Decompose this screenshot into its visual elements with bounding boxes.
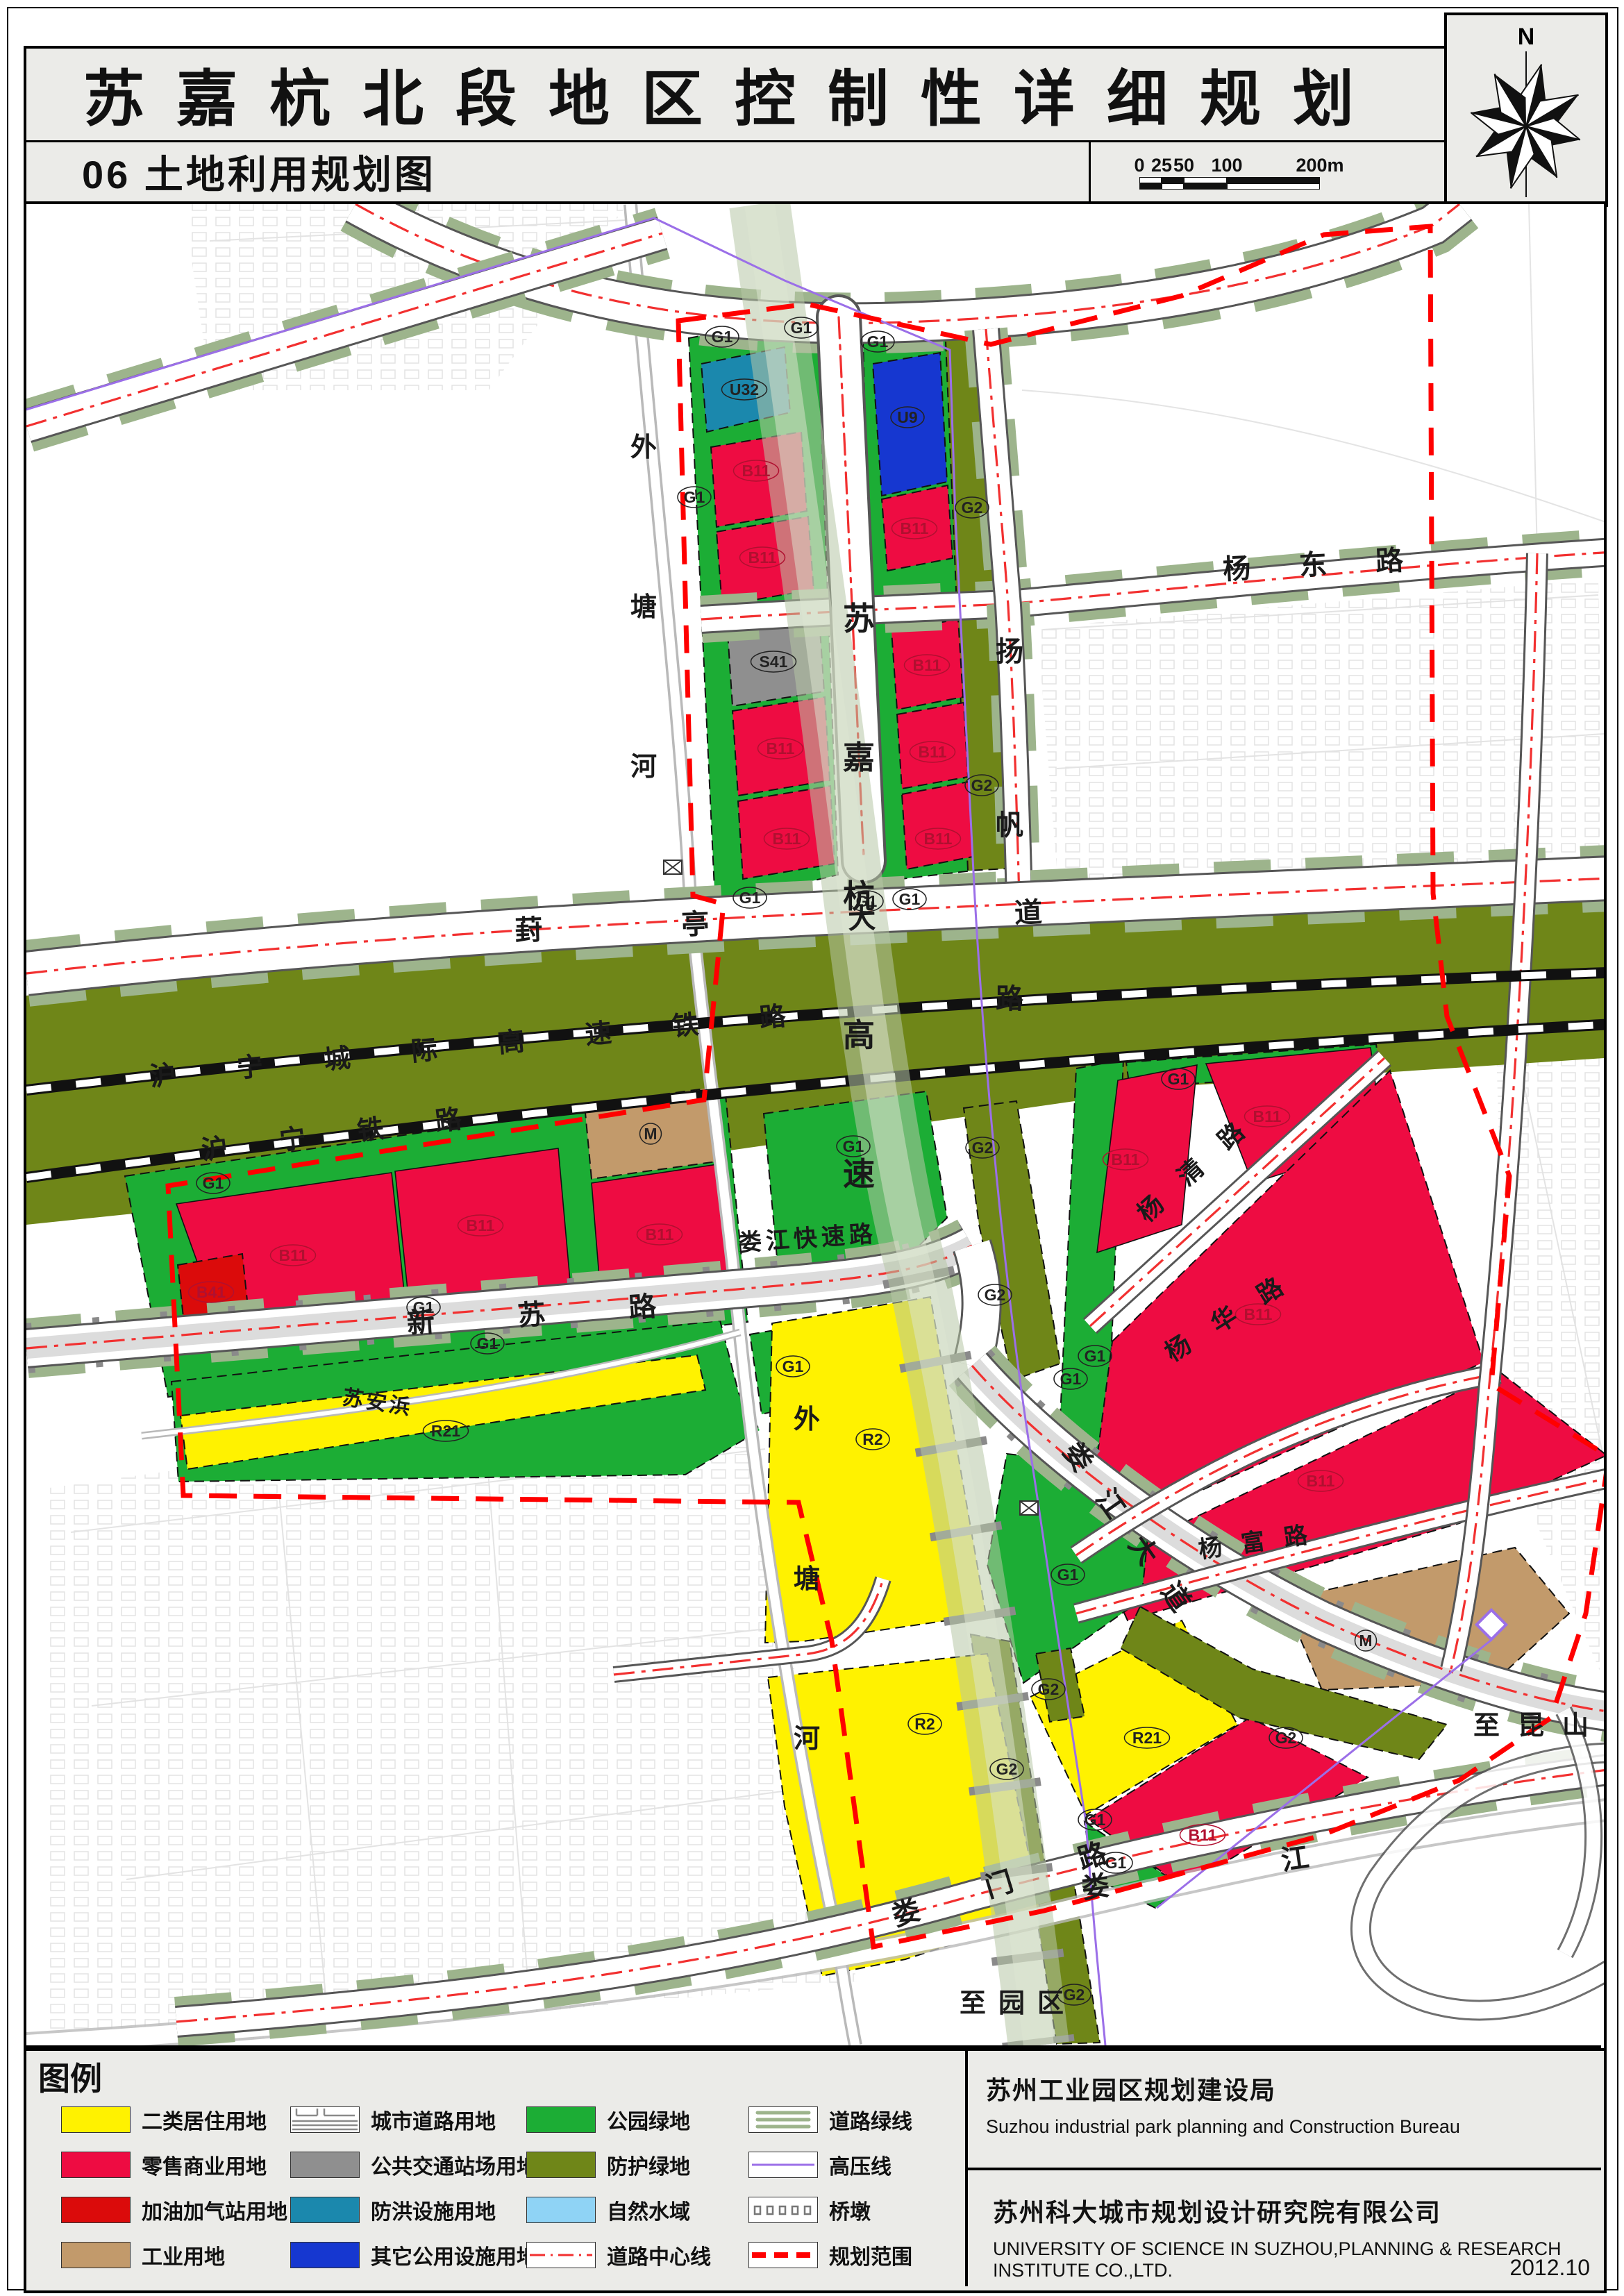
- legend-item-other-utility: 其它公用设施用地: [290, 2240, 526, 2270]
- legend-item-gas-station: 加油加气站用地: [61, 2195, 290, 2225]
- legend-item-protective-green: 防护绿地: [526, 2150, 748, 2180]
- hv-line-swatch: [748, 2152, 818, 2178]
- scale-segment: [1162, 177, 1184, 183]
- scale-bar: 0 25 50 100 200m: [1089, 142, 1446, 201]
- parcel-code-r2: R2: [862, 1430, 882, 1448]
- parcel-code-u9: U9: [897, 408, 917, 426]
- parcel-code-m: M: [644, 1125, 657, 1143]
- retail-swatch: [61, 2152, 131, 2178]
- north-arrow-icon: N: [1447, 15, 1605, 204]
- park-green-swatch: [526, 2106, 596, 2133]
- parcel-code-r21: R21: [1132, 1729, 1162, 1747]
- north-arrow-box: N: [1444, 12, 1608, 207]
- legend-item-retail: 零售商业用地: [61, 2150, 290, 2180]
- scale-tick-25: 25: [1151, 155, 1172, 176]
- road-centerline-swatch: [526, 2242, 596, 2268]
- land-use-map: G1G1U32B11B11G1S41B11B11G1G1U9B11B11B11B…: [26, 204, 1604, 2048]
- north-label: N: [1518, 24, 1535, 50]
- legend-item-flood-control: 防洪设施用地: [290, 2195, 526, 2225]
- sluice-icon: [1020, 1501, 1038, 1515]
- parcel-code-r2: R2: [914, 1715, 935, 1733]
- other-utility-swatch: [290, 2242, 360, 2268]
- parcel-code-b11: B11: [748, 548, 777, 567]
- parcel-code-g1: G1: [203, 1174, 224, 1192]
- scale-tick-200m: 200m: [1296, 155, 1343, 176]
- parcel-code-g1: G1: [684, 488, 705, 506]
- parcel-code-g1: G1: [782, 1357, 804, 1375]
- page-subtitle: 06 土地利用规划图: [82, 144, 436, 200]
- scale-tick-100: 100: [1211, 155, 1242, 176]
- road-ave-connector: [972, 1246, 982, 1366]
- dir-to-yuanqu: 至园区: [960, 1989, 1076, 2018]
- dir-to-kunshan: 至昆山: [1473, 1711, 1604, 1741]
- scale-segment: [1184, 177, 1227, 183]
- parcel-code-g2: G2: [972, 1139, 994, 1157]
- residential-swatch: [61, 2106, 131, 2133]
- legend-item-planning-scope: 规划范围: [748, 2240, 950, 2270]
- legend-item-road-centerline: 道路中心线: [526, 2240, 748, 2270]
- parcel-code-b11: B11: [913, 656, 941, 674]
- parcel-code-g2: G2: [1038, 1680, 1060, 1698]
- parcel-code-b11: B11: [767, 739, 795, 757]
- parcel-code-g2: G2: [996, 1760, 1018, 1778]
- institute-name-cn: 苏州科大城市规划设计研究院有限公司: [993, 2193, 1624, 2229]
- parcel-code-b11: B11: [924, 830, 953, 848]
- parcel-code-g1: G1: [1057, 1566, 1079, 1584]
- parcel-code-g1: G1: [1060, 1370, 1082, 1388]
- gas-station-swatch: [61, 2197, 131, 2223]
- scale-segment: [1162, 183, 1184, 190]
- transit-station-swatch: [290, 2152, 360, 2178]
- footer-divider: [968, 2168, 1601, 2170]
- parcel-code-g2: G2: [1275, 1729, 1297, 1747]
- legend-item-road-greenline: 道路绿线: [748, 2104, 950, 2135]
- scale-segment: [1139, 183, 1162, 190]
- legend-title: 图例: [38, 2054, 102, 2100]
- parcel-code-g1: G1: [867, 333, 889, 351]
- scale-segment: [1227, 183, 1320, 190]
- scale-tick-0: 0: [1134, 155, 1144, 176]
- parcel-code-r21: R21: [431, 1422, 460, 1440]
- scale-tick-50: 50: [1173, 155, 1194, 176]
- title-bar: 苏嘉杭北段地区控制性详细规划: [26, 49, 1443, 139]
- page-title: 苏嘉杭北段地区控制性详细规划: [83, 50, 1386, 138]
- parcel-code-g2: G2: [985, 1286, 1006, 1304]
- scale-segment: [1139, 177, 1162, 183]
- industrial-swatch: [61, 2242, 131, 2268]
- parcel-code-g1: G1: [1168, 1070, 1189, 1088]
- parcel-code-m: M: [1359, 1632, 1372, 1650]
- parcel-code-g2: G2: [971, 776, 993, 794]
- legend-item-park-green: 公园绿地: [526, 2104, 748, 2135]
- parcel-code-g2: G2: [962, 498, 983, 517]
- parcel-code-u32: U32: [730, 380, 759, 399]
- urban-road-swatch: [290, 2106, 360, 2133]
- parcel-code-b11: B11: [279, 1246, 308, 1264]
- parcel-code-g1: G1: [739, 889, 761, 907]
- legend-item-natural-water: 自然水域: [526, 2195, 748, 2225]
- parcel-code-b11: B11: [742, 462, 771, 480]
- legend-item-bridge-pier: 桥墩: [748, 2195, 950, 2225]
- parcel-code-b11: B11: [467, 1216, 495, 1234]
- parcel-code-g1: G1: [712, 328, 733, 346]
- parcel-code-b41: B41: [196, 1283, 226, 1301]
- scale-segment: [1227, 177, 1320, 183]
- legend-item-industrial: 工业用地: [61, 2240, 290, 2270]
- legend-item-transit-station: 公共交通站场用地: [290, 2150, 526, 2180]
- map-date: 2012.10: [1509, 2255, 1590, 2281]
- legend-item-urban-road: 城市道路用地: [290, 2104, 526, 2135]
- parcel-code-b11: B11: [646, 1225, 674, 1243]
- road-greenline-swatch: [748, 2106, 818, 2133]
- parcel-code-b11: B11: [901, 519, 929, 537]
- parcel-code-b11: B11: [773, 830, 801, 848]
- parcel-code-b11: B11: [919, 743, 947, 761]
- subtitle-cell: 06 土地利用规划图: [26, 142, 1089, 201]
- planning-scope-swatch: [748, 2242, 818, 2268]
- sluice-icon: [664, 860, 682, 874]
- parcel-code-g1: G1: [1085, 1347, 1106, 1365]
- parcel-code-b11: B11: [1307, 1472, 1335, 1490]
- parcel-code-b11: B11: [1112, 1150, 1140, 1168]
- protective-green-swatch: [526, 2152, 596, 2178]
- legend: 二类居住用地 城市道路用地 公园绿地 道路绿线 零售商业用地 公共交通站场用地 …: [61, 2097, 957, 2277]
- scale-segment: [1184, 183, 1227, 190]
- bridge-pier-swatch: [748, 2197, 818, 2223]
- legend-item-hv-line: 高压线: [748, 2150, 950, 2180]
- parcel-code-s41: S41: [760, 653, 788, 671]
- flood-control-swatch: [290, 2197, 360, 2223]
- legend-item-residential: 二类居住用地: [61, 2104, 290, 2135]
- zone-b11: [902, 782, 973, 869]
- bureau-name-cn: 苏州工业园区规划建设局: [986, 2070, 1460, 2106]
- parcel-code-g1: G1: [791, 319, 812, 337]
- bureau-name-en: Suzhou industrial park planning and Cons…: [986, 2116, 1460, 2138]
- parcel-code-b11: B11: [1189, 1826, 1217, 1844]
- parcel-code-g1: G1: [477, 1334, 499, 1352]
- parcel-code-g1: G1: [1085, 1811, 1106, 1829]
- bureau-block: 苏州工业园区规划建设局 Suzhou industrial park plann…: [986, 2070, 1460, 2138]
- parcel-code-g1: G1: [843, 1137, 864, 1155]
- map-canvas: G1G1U32B11B11G1S41B11B11G1G1U9B11B11B11B…: [24, 201, 1607, 2051]
- natural-water-swatch: [526, 2197, 596, 2223]
